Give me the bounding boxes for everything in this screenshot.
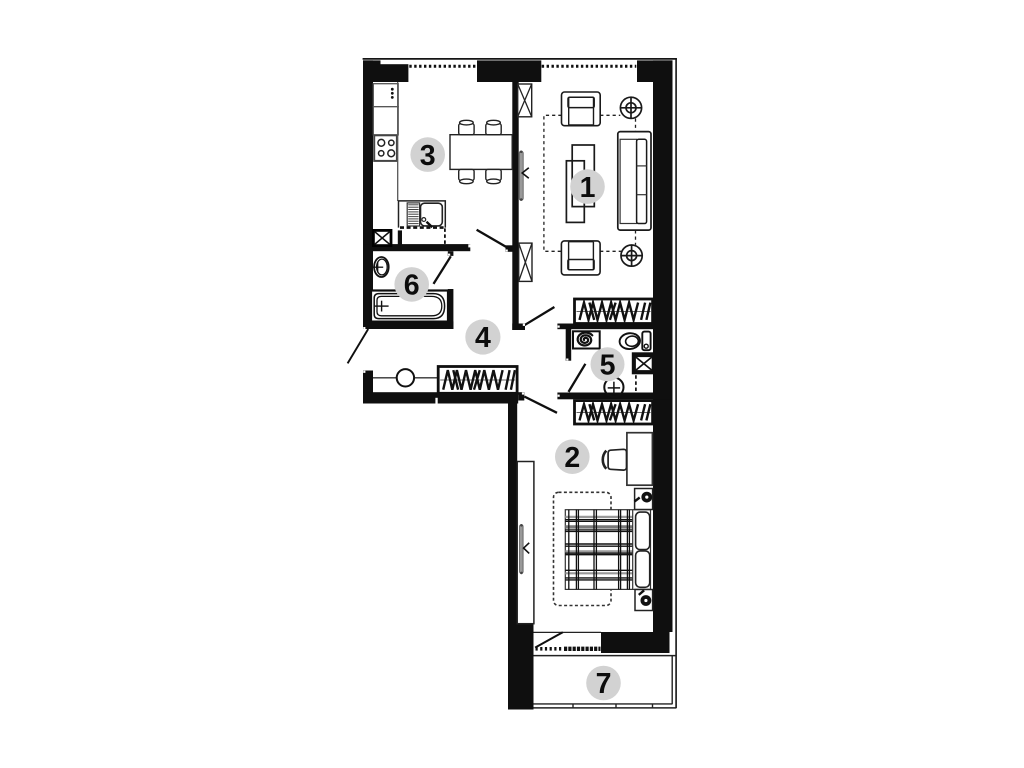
svg-text:6: 6: [404, 270, 420, 302]
svg-text:3: 3: [420, 140, 436, 172]
svg-text:1: 1: [580, 172, 596, 204]
svg-text:5: 5: [600, 350, 616, 382]
svg-text:2: 2: [564, 442, 580, 474]
svg-text:4: 4: [475, 322, 491, 354]
svg-text:7: 7: [596, 668, 612, 700]
